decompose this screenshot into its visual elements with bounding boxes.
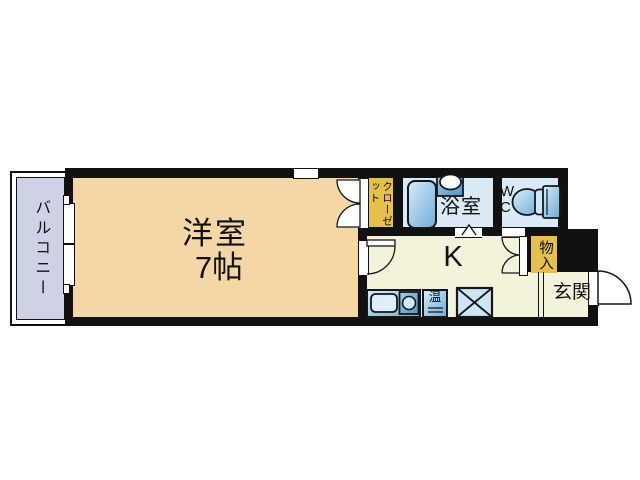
closet-label: クローゼット [368, 181, 393, 227]
balcony: バルコニー [10, 171, 69, 326]
storage-label: 物入 [536, 240, 552, 276]
bedroom-size-label: 7帖 [160, 251, 278, 285]
kitchen-door-opening [358, 241, 369, 275]
entrance-door-swing [598, 271, 631, 304]
wall-south [65, 317, 598, 326]
entrance-label: 玄関 [552, 283, 592, 304]
wall-closet-bathroom [393, 177, 403, 228]
toilet-label-w: W [500, 183, 514, 200]
water-heater-label: 温 [423, 291, 447, 305]
bathroom-label: 浴室 [436, 196, 486, 218]
bathroom-door-opening [455, 227, 482, 238]
window-frame-tick-bottom [63, 284, 70, 294]
entrance-step-line [538, 272, 544, 317]
window-frame-tick-top [63, 195, 70, 205]
wall-bedroom-kitchen-lower [358, 274, 367, 317]
balcony-floor: バルコニー [16, 177, 65, 320]
balcony-window [63, 203, 75, 286]
storage-door-leaf [519, 236, 528, 276]
kitchen-label: K [438, 242, 468, 274]
toilet-label: WC [500, 184, 514, 216]
north-window [293, 168, 319, 179]
balcony-label: バルコニー [32, 199, 50, 299]
wall-toilet-east [558, 168, 568, 230]
bedroom-label: 洋室 [160, 217, 270, 251]
floor-plan: バルコニー [0, 0, 640, 480]
toilet-label-c: C [500, 199, 511, 216]
